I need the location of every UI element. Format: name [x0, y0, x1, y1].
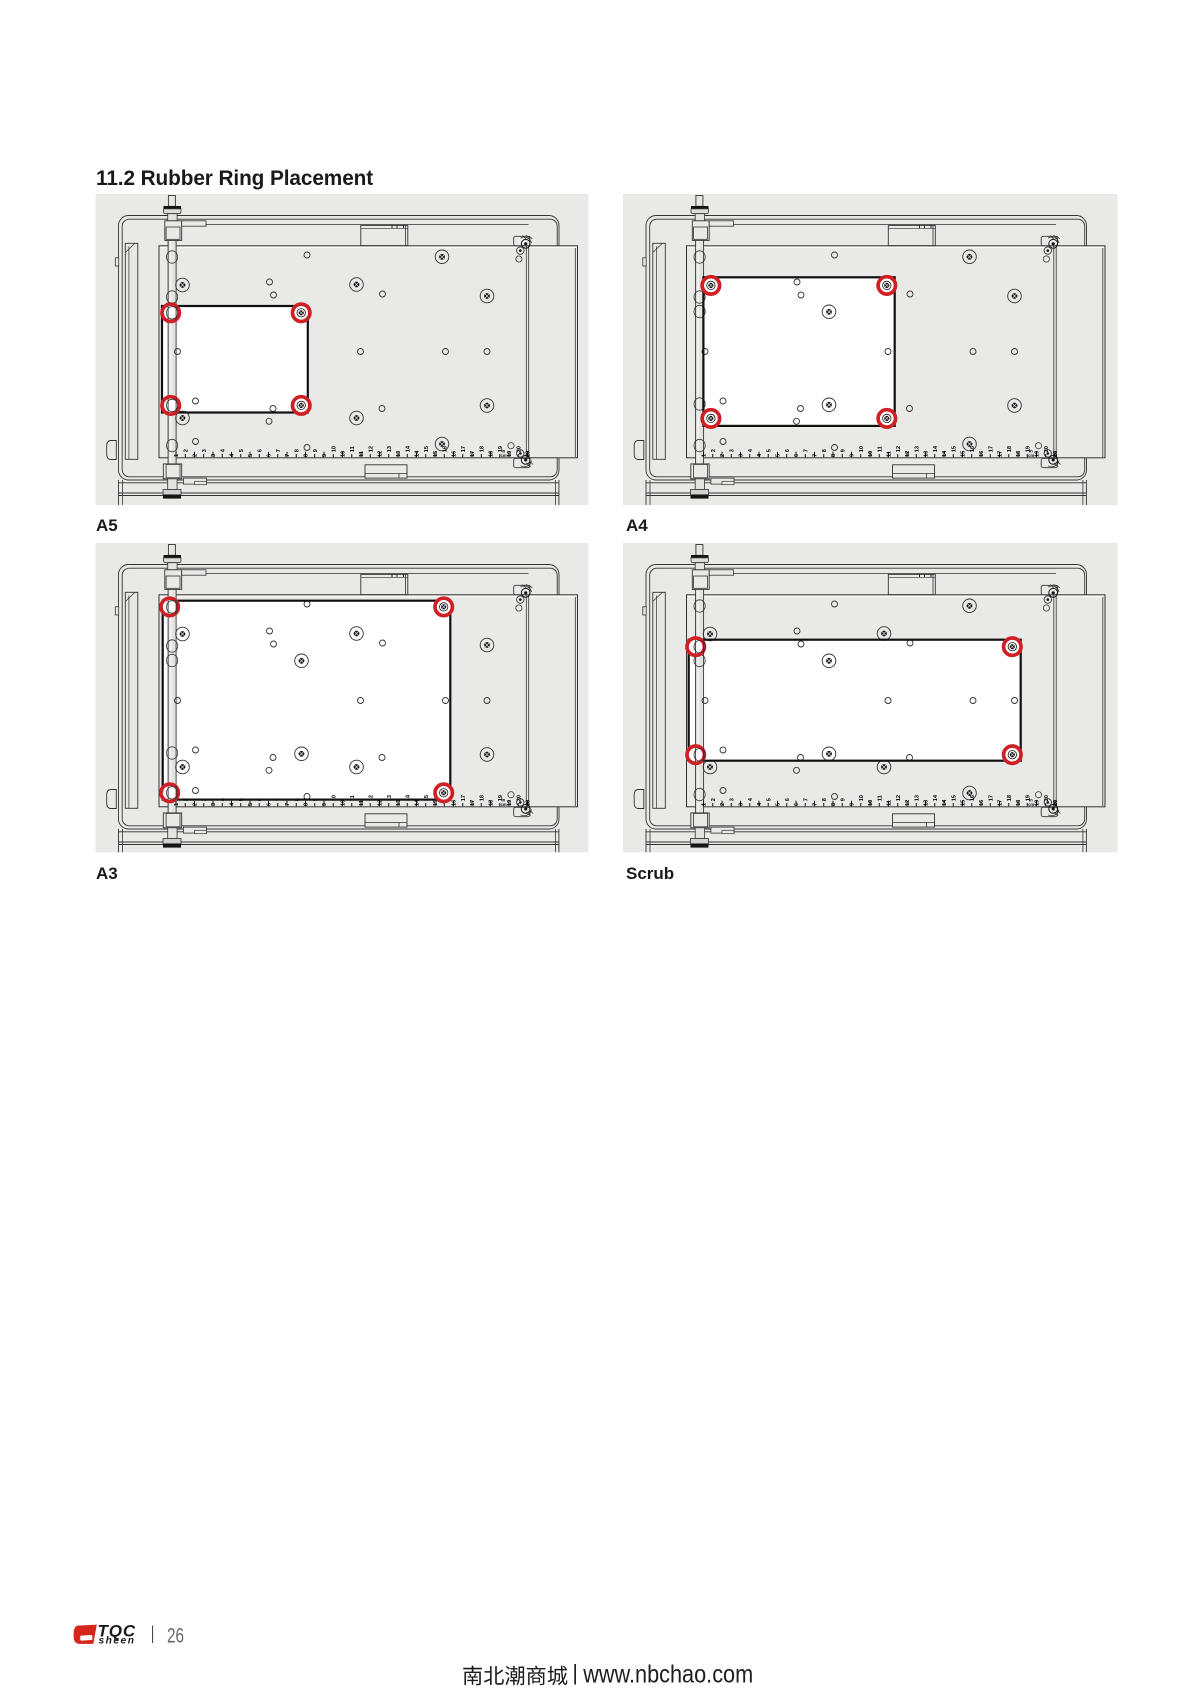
svg-text:17: 17 [998, 451, 1004, 457]
svg-text:16: 16 [979, 800, 985, 806]
svg-text:8: 8 [831, 454, 837, 457]
svg-text:13: 13 [924, 451, 930, 457]
svg-text:12: 12 [905, 451, 911, 457]
svg-text:8: 8 [304, 803, 310, 806]
svg-text:3: 3 [211, 803, 217, 806]
svg-text:5: 5 [248, 803, 254, 806]
svg-text:14: 14 [933, 445, 939, 452]
svg-text:5: 5 [767, 798, 773, 801]
svg-text:7: 7 [804, 449, 810, 452]
svg-text:14: 14 [933, 794, 939, 801]
svg-text:6: 6 [267, 803, 273, 806]
svg-text:20: 20 [526, 451, 532, 457]
svg-text:sheen: sheen [99, 1636, 136, 1647]
svg-text:11: 11 [887, 451, 893, 457]
svg-text:9: 9 [313, 449, 319, 452]
svg-text:8: 8 [304, 454, 310, 457]
svg-text:1: 1 [702, 803, 708, 806]
svg-text:17: 17 [470, 451, 476, 457]
svg-text:cm: cm [1028, 802, 1034, 807]
svg-text:7: 7 [285, 454, 291, 457]
svg-text:cm: cm [501, 802, 507, 807]
svg-text:5: 5 [776, 803, 782, 806]
svg-text:7: 7 [813, 454, 819, 457]
svg-text:15: 15 [961, 451, 967, 457]
svg-text:1: 1 [174, 454, 180, 457]
svg-text:13: 13 [915, 795, 921, 801]
svg-text:13: 13 [396, 451, 402, 457]
svg-text:18: 18 [480, 795, 486, 801]
svg-text:11: 11 [359, 451, 365, 457]
svg-text:8: 8 [822, 449, 828, 452]
svg-text:9: 9 [322, 803, 328, 806]
svg-text:2: 2 [193, 803, 199, 806]
svg-text:3: 3 [211, 454, 217, 457]
svg-text:18: 18 [1007, 446, 1013, 452]
svg-text:3: 3 [739, 454, 745, 457]
svg-text:2: 2 [711, 798, 717, 801]
svg-text:16: 16 [452, 800, 458, 806]
svg-text:2: 2 [720, 454, 726, 457]
svg-text:17: 17 [998, 800, 1004, 806]
svg-text:14: 14 [406, 445, 412, 452]
svg-text:14: 14 [415, 450, 421, 457]
svg-text:17: 17 [461, 446, 467, 452]
svg-text:6: 6 [794, 454, 800, 457]
svg-text:14: 14 [942, 450, 948, 457]
svg-text:10: 10 [341, 451, 347, 457]
svg-text:8: 8 [822, 798, 828, 801]
svg-text:10: 10 [332, 446, 338, 452]
svg-text:17: 17 [989, 446, 995, 452]
svg-text:18: 18 [1016, 800, 1022, 806]
svg-text:12: 12 [905, 800, 911, 806]
svg-text:8: 8 [831, 803, 837, 806]
svg-text:20: 20 [517, 795, 523, 801]
svg-text:16: 16 [970, 446, 976, 452]
svg-text:3: 3 [730, 798, 736, 801]
svg-text:12: 12 [378, 800, 384, 806]
svg-text:18: 18 [489, 451, 495, 457]
svg-text:10: 10 [868, 451, 874, 457]
svg-text:16: 16 [970, 795, 976, 801]
svg-text:20: 20 [526, 800, 532, 806]
svg-text:6: 6 [258, 449, 264, 452]
svg-text:2: 2 [711, 449, 717, 452]
svg-text:6: 6 [785, 798, 791, 801]
svg-text:10: 10 [859, 795, 865, 801]
svg-text:11: 11 [359, 800, 365, 806]
svg-text:19: 19 [1035, 800, 1041, 806]
svg-text:15: 15 [433, 451, 439, 457]
svg-text:9: 9 [850, 803, 856, 806]
svg-text:7: 7 [285, 803, 291, 806]
svg-text:16: 16 [452, 451, 458, 457]
svg-text:3: 3 [730, 449, 736, 452]
svg-text:3: 3 [739, 803, 745, 806]
svg-text:20: 20 [1053, 800, 1059, 806]
svg-text:10: 10 [859, 446, 865, 452]
svg-text:9: 9 [322, 454, 328, 457]
svg-text:5: 5 [239, 449, 245, 452]
svg-text:6: 6 [785, 449, 791, 452]
svg-text:16: 16 [979, 451, 985, 457]
svg-text:15: 15 [952, 795, 958, 801]
svg-text:11: 11 [878, 446, 884, 452]
svg-text:11: 11 [887, 800, 893, 806]
svg-text:11: 11 [350, 446, 356, 452]
svg-text:7: 7 [276, 449, 282, 452]
svg-text:7: 7 [804, 798, 810, 801]
svg-text:20: 20 [1044, 446, 1050, 452]
svg-text:19: 19 [507, 451, 513, 457]
svg-text:6: 6 [267, 454, 273, 457]
svg-text:7: 7 [813, 803, 819, 806]
svg-text:cm: cm [1028, 453, 1034, 458]
svg-text:8: 8 [295, 449, 301, 452]
svg-text:3: 3 [202, 449, 208, 452]
svg-text:2: 2 [720, 803, 726, 806]
svg-text:18: 18 [480, 446, 486, 452]
svg-text:cm: cm [501, 453, 507, 458]
svg-text:5: 5 [767, 449, 773, 452]
svg-text:13: 13 [387, 446, 393, 452]
svg-text:10: 10 [868, 800, 874, 806]
svg-text:19: 19 [507, 800, 513, 806]
svg-text:15: 15 [952, 446, 958, 452]
svg-text:1: 1 [174, 803, 180, 806]
svg-text:www.nbchao.com: www.nbchao.com [582, 1660, 753, 1688]
svg-text:20: 20 [1053, 451, 1059, 457]
svg-text:13: 13 [924, 800, 930, 806]
svg-text:20: 20 [1044, 795, 1050, 801]
svg-text:13: 13 [396, 800, 402, 806]
svg-text:14: 14 [942, 799, 948, 806]
svg-text:17: 17 [470, 800, 476, 806]
svg-text:18: 18 [1016, 451, 1022, 457]
svg-text:19: 19 [1035, 451, 1041, 457]
svg-text:16: 16 [443, 446, 449, 452]
svg-text:18: 18 [1007, 795, 1013, 801]
svg-text:26: 26 [167, 1623, 184, 1647]
svg-text:12: 12 [896, 446, 902, 452]
svg-text:13: 13 [915, 446, 921, 452]
svg-text:9: 9 [850, 454, 856, 457]
svg-text:9: 9 [841, 798, 847, 801]
svg-text:15: 15 [424, 446, 430, 452]
svg-text:9: 9 [841, 449, 847, 452]
svg-text:2: 2 [184, 449, 190, 452]
svg-text:6: 6 [794, 803, 800, 806]
svg-text:5: 5 [248, 454, 254, 457]
svg-text:18: 18 [489, 800, 495, 806]
svg-text:17: 17 [989, 795, 995, 801]
svg-text:12: 12 [369, 446, 375, 452]
svg-text:12: 12 [378, 451, 384, 457]
svg-text:10: 10 [341, 800, 347, 806]
svg-text:1: 1 [702, 454, 708, 457]
svg-text:12: 12 [896, 795, 902, 801]
svg-text:20: 20 [517, 446, 523, 452]
svg-text:5: 5 [776, 454, 782, 457]
svg-text:15: 15 [961, 800, 967, 806]
svg-text:2: 2 [193, 454, 199, 457]
svg-text:17: 17 [461, 795, 467, 801]
svg-text:11: 11 [878, 795, 884, 801]
